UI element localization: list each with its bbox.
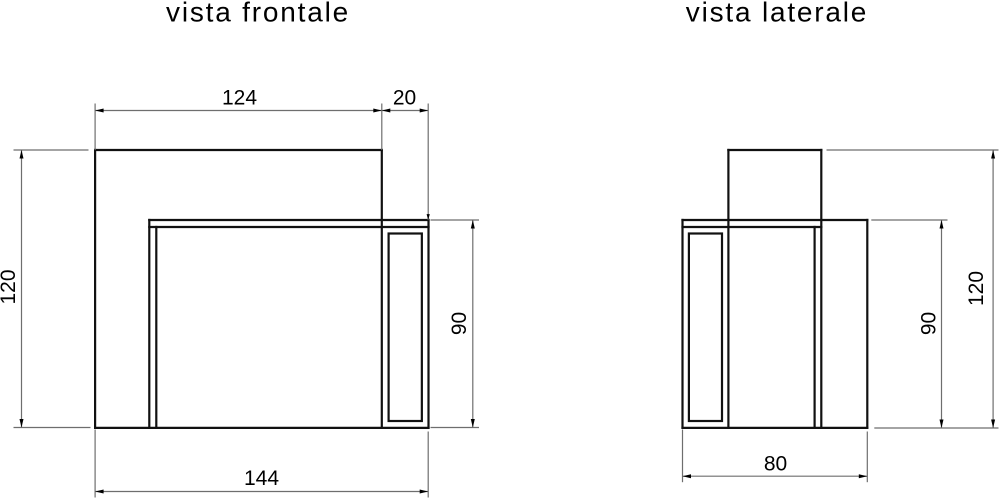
svg-text:120: 120 xyxy=(0,269,20,304)
svg-text:90: 90 xyxy=(918,312,941,335)
svg-text:144: 144 xyxy=(244,467,279,490)
svg-text:124: 124 xyxy=(222,86,257,109)
svg-text:120: 120 xyxy=(965,271,988,306)
svg-text:vista frontale: vista frontale xyxy=(166,0,350,28)
svg-text:90: 90 xyxy=(448,312,471,335)
svg-text:80: 80 xyxy=(764,453,787,476)
svg-text:vista laterale: vista laterale xyxy=(686,0,868,28)
svg-text:20: 20 xyxy=(393,86,416,109)
